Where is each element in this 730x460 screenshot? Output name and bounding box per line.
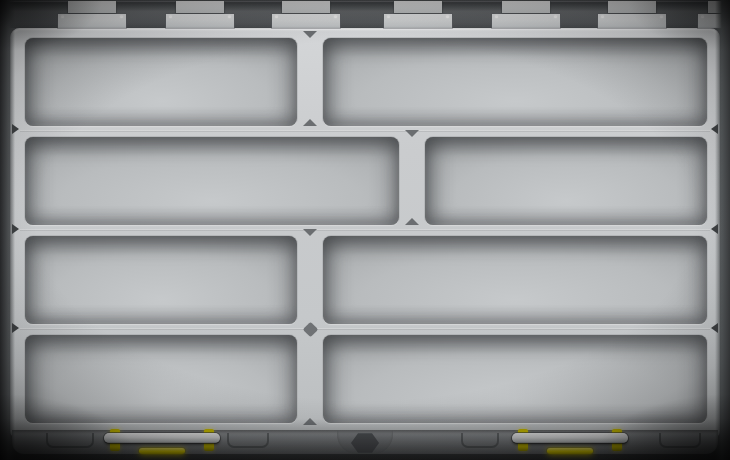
organizer-case	[0, 0, 730, 460]
hinge-pin-icon	[120, 15, 123, 18]
hinge-pin-icon	[334, 15, 337, 18]
compartment-r3c2	[323, 236, 707, 324]
hex-recess-icon	[351, 432, 379, 454]
hinge-lid-tab	[176, 1, 224, 13]
hinge-pin-icon	[495, 15, 498, 18]
hinge-flap	[58, 14, 126, 28]
hinge-pin-icon	[446, 15, 449, 18]
hinge-lid-tab	[394, 1, 442, 13]
hinge-flap	[492, 14, 560, 28]
latch-yellow-strip	[139, 448, 185, 454]
hinge-3	[272, 1, 340, 28]
latch-bar	[512, 433, 628, 443]
hinge-lid-tab	[502, 1, 550, 13]
hinge-lid-tab	[608, 1, 656, 13]
hinge-lid-tab	[68, 1, 116, 13]
divider-up-triangle	[303, 119, 317, 126]
divider-up-triangle	[303, 418, 317, 425]
compartment-r2c2	[425, 137, 707, 225]
compartment-r3c1	[25, 236, 297, 324]
hinge-5	[492, 1, 560, 28]
hinge-2	[166, 1, 234, 28]
compartment-r4c2	[323, 335, 707, 423]
edge-notch-right	[711, 224, 718, 234]
hinge-flap	[384, 14, 452, 28]
divider-down-triangle	[303, 229, 317, 236]
row-seam-1	[20, 130, 710, 132]
hinge-pin-icon	[228, 15, 231, 18]
hinge-pin-icon	[275, 15, 278, 18]
hinge-pin-icon	[660, 15, 663, 18]
hinge-pin-icon	[169, 15, 172, 18]
row-seam-3	[20, 328, 710, 330]
compartment-r2c1	[25, 137, 399, 225]
hinge-lid-tab	[282, 1, 330, 13]
latch-yellow-strip	[547, 448, 593, 454]
compartment-r4c1	[25, 335, 297, 423]
hinge-flap	[598, 14, 666, 28]
hinge-6	[598, 1, 666, 28]
edge-notch-right	[711, 323, 718, 333]
hinge-4	[384, 1, 452, 28]
divider-up-triangle	[405, 218, 419, 225]
divider-down-triangle	[405, 130, 419, 137]
hinge-flap	[272, 14, 340, 28]
divider-down-triangle	[303, 31, 317, 38]
hinge-pin-icon	[601, 15, 604, 18]
edge-notch-left	[12, 323, 19, 333]
edge-notch-right	[711, 124, 718, 134]
compartment-r1c2	[323, 38, 707, 126]
hinge-pin-icon	[701, 15, 704, 18]
rail-slot-2	[227, 433, 269, 448]
rail-slot-4	[659, 433, 701, 448]
rail-slot-3	[461, 433, 499, 448]
hinge-pin-icon	[387, 15, 390, 18]
compartment-r1c1	[25, 38, 297, 126]
edge-notch-left	[12, 224, 19, 234]
hinge-1	[58, 1, 126, 28]
latch-bar	[104, 433, 220, 443]
edge-notch-left	[12, 124, 19, 134]
latch-1	[102, 428, 222, 456]
hinge-flap	[166, 14, 234, 28]
latch-2	[510, 428, 630, 456]
hinge-pin-icon	[61, 15, 64, 18]
hinge-pin-icon	[554, 15, 557, 18]
row-seam-2	[20, 229, 710, 231]
rail-slot-1	[46, 433, 94, 448]
